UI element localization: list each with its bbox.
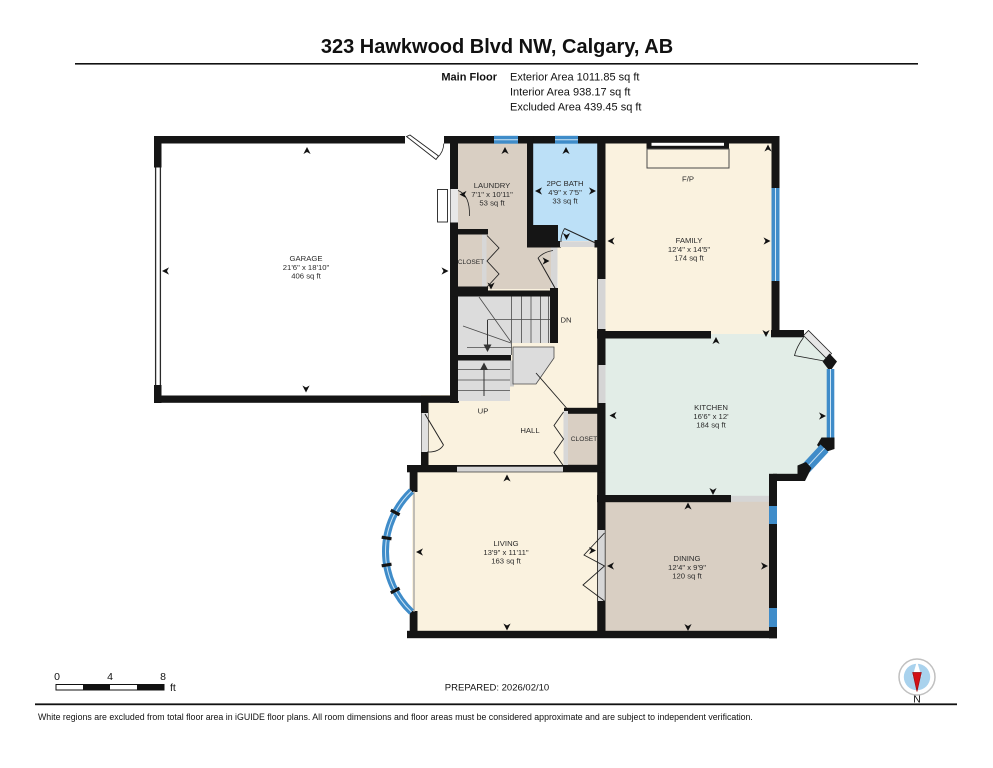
svg-text:184 sq ft: 184 sq ft: [696, 421, 726, 430]
svg-text:LAUNDRY: LAUNDRY: [474, 181, 511, 190]
svg-text:33 sq ft: 33 sq ft: [552, 197, 578, 206]
svg-text:CLOSET: CLOSET: [571, 436, 597, 443]
svg-text:163 sq ft: 163 sq ft: [491, 557, 521, 566]
svg-text:LIVING: LIVING: [493, 539, 518, 548]
svg-text:323 Hawkwood Blvd NW, Calgary,: 323 Hawkwood Blvd NW, Calgary, AB: [321, 36, 673, 58]
svg-text:Exterior Area 1011.85 sq ft: Exterior Area 1011.85 sq ft: [510, 72, 639, 84]
svg-text:GARAGE: GARAGE: [290, 254, 323, 263]
svg-text:8: 8: [160, 671, 166, 683]
svg-text:PREPARED: 2026/02/10: PREPARED: 2026/02/10: [445, 683, 549, 694]
svg-text:White regions are excluded fro: White regions are excluded from total fl…: [38, 712, 753, 722]
svg-text:UP: UP: [478, 407, 489, 416]
svg-text:F/P: F/P: [682, 175, 694, 184]
svg-text:Interior Area 938.17 sq ft: Interior Area 938.17 sq ft: [510, 87, 630, 99]
svg-text:ft: ft: [170, 682, 176, 694]
svg-text:CLOSET: CLOSET: [458, 259, 484, 266]
svg-text:Excluded Area 439.45 sq ft: Excluded Area 439.45 sq ft: [510, 102, 641, 114]
svg-text:KITCHEN: KITCHEN: [694, 403, 728, 412]
svg-text:Main Floor: Main Floor: [441, 72, 497, 84]
svg-text:2PC BATH: 2PC BATH: [546, 179, 583, 188]
svg-text:120 sq ft: 120 sq ft: [672, 572, 702, 581]
svg-text:DN: DN: [560, 316, 571, 325]
svg-text:53 sq ft: 53 sq ft: [479, 199, 505, 208]
svg-text:FAMILY: FAMILY: [676, 236, 703, 245]
svg-text:HALL: HALL: [520, 426, 540, 435]
svg-text:4: 4: [107, 671, 113, 683]
svg-text:0: 0: [54, 671, 60, 683]
svg-text:DINING: DINING: [674, 554, 701, 563]
svg-text:174 sq ft: 174 sq ft: [674, 254, 704, 263]
svg-text:406 sq ft: 406 sq ft: [291, 272, 321, 281]
